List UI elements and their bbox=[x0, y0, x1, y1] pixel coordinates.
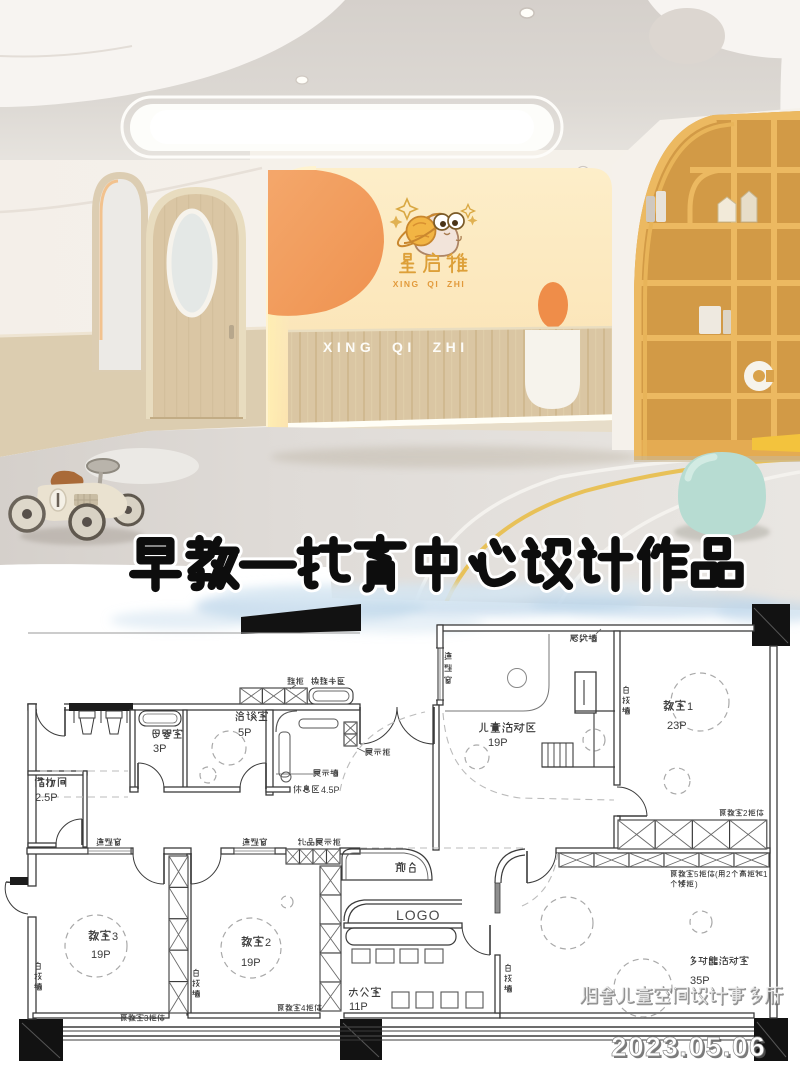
svg-text:2023.05.06: 2023.05.06 bbox=[611, 1031, 766, 1062]
